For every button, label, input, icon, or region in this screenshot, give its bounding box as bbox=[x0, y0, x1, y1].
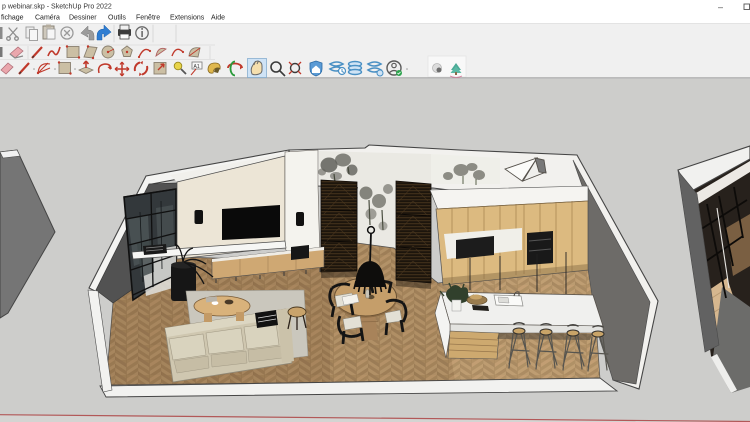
svg-text:Outils: Outils bbox=[108, 15, 126, 22]
svg-text:p webinar.skp - SketchUp Pro 2: p webinar.skp - SketchUp Pro 2022 bbox=[2, 4, 112, 11]
svg-text:Fenêtre: Fenêtre bbox=[136, 15, 160, 22]
svg-text:fichage: fichage bbox=[1, 15, 24, 22]
svg-text:A1: A1 bbox=[194, 64, 200, 70]
svg-text:Aide: Aide bbox=[211, 15, 225, 22]
svg-text:Dessiner: Dessiner bbox=[69, 15, 97, 22]
svg-text:–: – bbox=[718, 2, 723, 12]
svg-text:Extensions: Extensions bbox=[170, 15, 205, 22]
svg-text:Caméra: Caméra bbox=[35, 15, 60, 22]
